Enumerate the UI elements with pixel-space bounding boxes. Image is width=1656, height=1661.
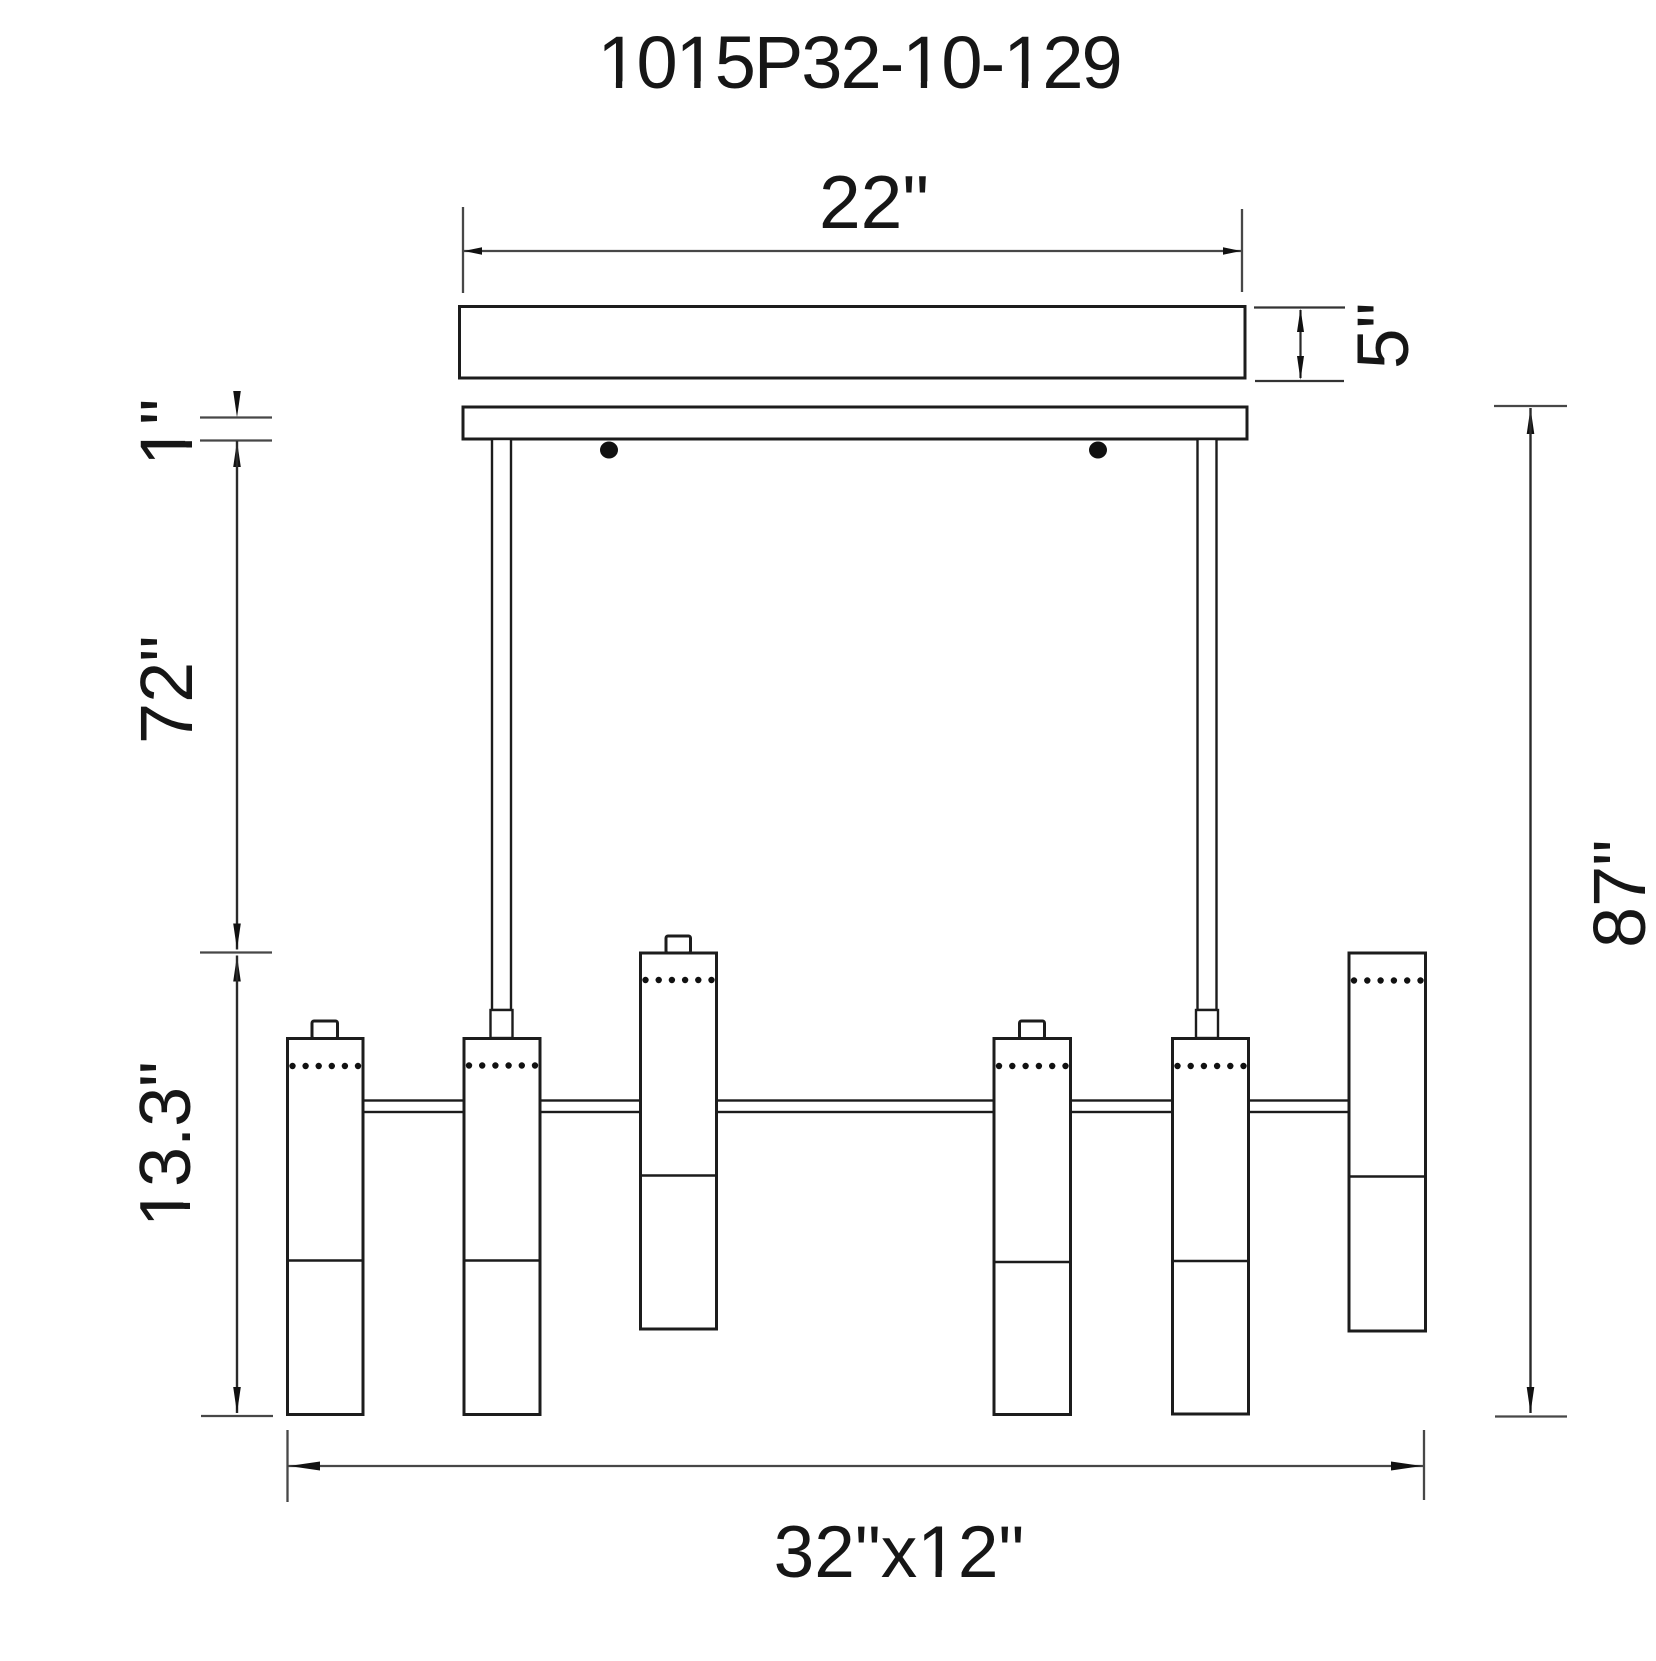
- svg-text:1": 1": [125, 399, 208, 466]
- svg-text:1015P32-10-129: 1015P32-10-129: [597, 21, 1120, 104]
- svg-text:13.3": 13.3": [126, 1061, 206, 1227]
- svg-text:87": 87": [1578, 839, 1656, 948]
- svg-text:72": 72": [125, 635, 208, 744]
- svg-text:22": 22": [819, 160, 929, 244]
- svg-text:5": 5": [1343, 302, 1424, 369]
- svg-text:32"x12": 32"x12": [774, 1512, 1025, 1593]
